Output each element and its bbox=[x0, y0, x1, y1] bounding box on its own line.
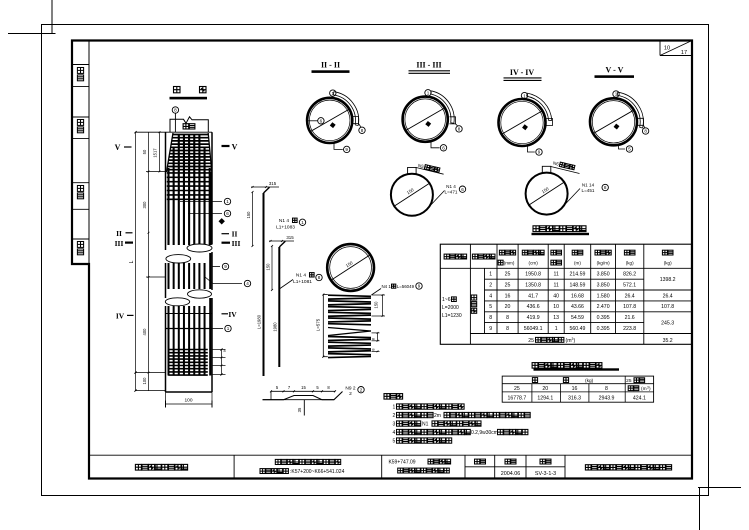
svg-text:25: 25 bbox=[514, 386, 520, 392]
svg-text:IV: IV bbox=[116, 311, 125, 320]
svg-text:(mm): (mm) bbox=[504, 261, 515, 266]
svg-text:1: 1 bbox=[523, 93, 526, 98]
svg-text:N1 14: N1 14 bbox=[582, 183, 595, 188]
svg-text:V - V: V - V bbox=[606, 65, 624, 74]
svg-text:1398.2: 1398.2 bbox=[660, 277, 676, 283]
svg-text:(cm): (cm) bbox=[529, 261, 539, 266]
svg-text:(kg): (kg) bbox=[664, 261, 672, 266]
svg-text:1: 1 bbox=[427, 91, 430, 96]
svg-text:1~6: 1~6 bbox=[442, 297, 451, 303]
svg-text:150: 150 bbox=[266, 263, 271, 271]
svg-text:N1 4: N1 4 bbox=[279, 218, 289, 224]
svg-text:10: 10 bbox=[553, 304, 559, 310]
svg-text:50: 50 bbox=[142, 149, 147, 154]
svg-text:150: 150 bbox=[374, 301, 379, 309]
svg-text:315: 315 bbox=[269, 181, 277, 186]
svg-text::K57+200~K66+541.024: :K57+200~K66+541.024 bbox=[290, 469, 345, 475]
svg-text:13: 13 bbox=[553, 315, 559, 321]
svg-text:8: 8 bbox=[489, 315, 492, 321]
svg-text:107.8: 107.8 bbox=[623, 304, 636, 310]
svg-text:1: 1 bbox=[301, 220, 304, 225]
svg-text:316.3: 316.3 bbox=[568, 396, 581, 402]
svg-text:16: 16 bbox=[572, 386, 578, 392]
svg-text:6: 6 bbox=[461, 187, 464, 192]
svg-text:41.7: 41.7 bbox=[528, 293, 538, 299]
svg-text:8: 8 bbox=[174, 108, 177, 113]
svg-text:9: 9 bbox=[538, 150, 541, 155]
svg-text:5: 5 bbox=[489, 304, 492, 310]
svg-text:(kg): (kg) bbox=[626, 261, 634, 266]
svg-text:214.59: 214.59 bbox=[570, 272, 586, 278]
svg-text:107.8: 107.8 bbox=[661, 304, 674, 310]
svg-text:2: 2 bbox=[489, 282, 492, 288]
svg-text:L=471: L=471 bbox=[445, 190, 458, 195]
svg-text:III - III: III - III bbox=[416, 60, 441, 69]
svg-text:N4 1: N4 1 bbox=[382, 284, 392, 289]
svg-text:L=1980: L=1980 bbox=[257, 314, 262, 329]
svg-text:1.580: 1.580 bbox=[597, 293, 610, 299]
svg-text:0.395: 0.395 bbox=[597, 326, 610, 332]
svg-text:25: 25 bbox=[626, 378, 632, 384]
svg-text:100: 100 bbox=[184, 398, 192, 404]
svg-text:V: V bbox=[115, 143, 121, 152]
svg-text:2943.9: 2943.9 bbox=[599, 396, 615, 402]
svg-text:0.395: 0.395 bbox=[597, 315, 610, 321]
svg-text:35.2: 35.2 bbox=[663, 338, 673, 344]
svg-text:25: 25 bbox=[505, 282, 511, 288]
svg-text:L=575: L=575 bbox=[316, 318, 321, 331]
svg-text:9: 9 bbox=[224, 264, 227, 269]
svg-text:15: 15 bbox=[301, 385, 306, 390]
svg-text:II: II bbox=[116, 229, 122, 238]
svg-text:(kg): (kg) bbox=[585, 378, 594, 384]
svg-text:8: 8 bbox=[223, 349, 225, 353]
svg-text:35: 35 bbox=[297, 407, 302, 412]
svg-text:54.59: 54.59 bbox=[571, 315, 584, 321]
svg-text:20: 20 bbox=[542, 386, 548, 392]
svg-text:V: V bbox=[232, 143, 238, 152]
svg-text:2: 2 bbox=[393, 413, 396, 419]
svg-text:2: 2 bbox=[349, 391, 352, 397]
svg-text:419.9: 419.9 bbox=[527, 315, 540, 321]
svg-text:2: 2 bbox=[360, 387, 363, 392]
svg-text:8: 8 bbox=[361, 128, 364, 133]
svg-text:1: 1 bbox=[332, 91, 335, 96]
svg-text:N1: N1 bbox=[422, 422, 429, 428]
svg-text:20: 20 bbox=[505, 304, 511, 310]
svg-text:40: 40 bbox=[553, 293, 559, 299]
svg-text:26.4: 26.4 bbox=[663, 293, 673, 299]
svg-text:25: 25 bbox=[505, 272, 511, 278]
svg-text:L=451: L=451 bbox=[582, 188, 595, 193]
svg-text:3.850: 3.850 bbox=[597, 272, 610, 278]
svg-text:1294.1: 1294.1 bbox=[537, 396, 553, 402]
svg-text:1: 1 bbox=[227, 326, 230, 331]
svg-text:1: 1 bbox=[393, 405, 396, 411]
svg-text:8: 8 bbox=[604, 185, 607, 190]
svg-text:IV: IV bbox=[228, 310, 237, 319]
svg-text:8: 8 bbox=[372, 338, 376, 340]
svg-text:5: 5 bbox=[628, 147, 631, 152]
svg-text:L1+1081: L1+1081 bbox=[293, 279, 312, 285]
svg-text:2004.06: 2004.06 bbox=[501, 471, 521, 477]
svg-text:9: 9 bbox=[489, 326, 492, 332]
svg-text:SV-3-1-3: SV-3-1-3 bbox=[535, 471, 556, 477]
svg-text:16.68: 16.68 bbox=[571, 293, 584, 299]
svg-text:315: 315 bbox=[286, 235, 294, 240]
svg-text:1: 1 bbox=[226, 199, 229, 204]
svg-text:6: 6 bbox=[442, 146, 445, 151]
svg-text:16: 16 bbox=[505, 293, 511, 299]
svg-text:1350.8: 1350.8 bbox=[525, 282, 541, 288]
svg-text:245.3: 245.3 bbox=[661, 320, 674, 326]
svg-text:L: L bbox=[129, 260, 135, 263]
svg-text:9: 9 bbox=[418, 284, 421, 289]
svg-text:6: 6 bbox=[226, 211, 229, 216]
svg-text:100: 100 bbox=[142, 377, 147, 385]
svg-text:25: 25 bbox=[528, 338, 534, 344]
svg-text:56049.1: 56049.1 bbox=[524, 326, 543, 332]
svg-text:1950.8: 1950.8 bbox=[525, 272, 541, 278]
svg-text:10: 10 bbox=[664, 46, 670, 52]
svg-text:L1=1230: L1=1230 bbox=[442, 313, 462, 319]
svg-text:(m): (m) bbox=[574, 261, 581, 266]
svg-text:IV - IV: IV - IV bbox=[510, 68, 535, 77]
svg-text:1: 1 bbox=[615, 92, 618, 97]
svg-text:16778.7: 16778.7 bbox=[508, 396, 527, 402]
svg-text:III: III bbox=[232, 239, 241, 248]
svg-text:572.1: 572.1 bbox=[623, 282, 636, 288]
svg-text:N1 4: N1 4 bbox=[446, 184, 456, 189]
svg-text:1517: 1517 bbox=[152, 148, 157, 158]
svg-text:(kg/m): (kg/m) bbox=[597, 261, 610, 266]
svg-text:6: 6 bbox=[320, 119, 323, 124]
svg-text:8: 8 bbox=[644, 129, 647, 134]
svg-text:L1+1083: L1+1083 bbox=[276, 225, 295, 231]
svg-text:11: 11 bbox=[554, 272, 559, 278]
svg-text:8: 8 bbox=[318, 275, 321, 280]
svg-text:1: 1 bbox=[555, 326, 558, 332]
svg-text:400: 400 bbox=[142, 328, 147, 336]
svg-text:150: 150 bbox=[246, 211, 251, 219]
svg-text:11: 11 bbox=[554, 282, 559, 288]
svg-text:8: 8 bbox=[458, 127, 461, 132]
svg-text:436.6: 436.6 bbox=[527, 304, 540, 310]
svg-text:148.59: 148.59 bbox=[570, 282, 586, 288]
svg-text:2.470: 2.470 bbox=[597, 304, 610, 310]
svg-text:4: 4 bbox=[489, 293, 492, 299]
svg-text:4: 4 bbox=[393, 430, 396, 436]
svg-text:9: 9 bbox=[345, 147, 348, 152]
svg-text:(m: (m bbox=[641, 386, 647, 392]
svg-text:0.2,9w30cm: 0.2,9w30cm bbox=[471, 430, 498, 436]
svg-text:8: 8 bbox=[605, 386, 608, 392]
svg-text:560.49: 560.49 bbox=[570, 326, 586, 332]
svg-text:3.850: 3.850 bbox=[597, 282, 610, 288]
svg-text:826.2: 826.2 bbox=[623, 272, 636, 278]
svg-text:4: 4 bbox=[246, 281, 249, 286]
svg-text:424.1: 424.1 bbox=[633, 396, 646, 402]
svg-text:17: 17 bbox=[681, 50, 687, 56]
svg-text:8: 8 bbox=[506, 315, 509, 321]
svg-text:1980: 1980 bbox=[272, 322, 277, 332]
svg-text:21.6: 21.6 bbox=[625, 315, 635, 321]
svg-text:3: 3 bbox=[393, 422, 396, 428]
svg-text:2m: 2m bbox=[434, 413, 441, 419]
svg-text:II: II bbox=[232, 230, 238, 239]
svg-text:5: 5 bbox=[393, 439, 396, 445]
svg-text:L=2000: L=2000 bbox=[442, 305, 459, 311]
svg-text:K59+747.09: K59+747.09 bbox=[388, 460, 415, 466]
svg-text:N1 4: N1 4 bbox=[296, 273, 306, 279]
svg-text:): ) bbox=[574, 338, 576, 344]
svg-text:1: 1 bbox=[489, 272, 492, 278]
svg-text:8: 8 bbox=[372, 348, 376, 350]
svg-text:II - II: II - II bbox=[321, 60, 340, 69]
svg-text:300: 300 bbox=[142, 201, 147, 209]
svg-text:L=56049: L=56049 bbox=[397, 284, 415, 289]
svg-text:26.4: 26.4 bbox=[625, 293, 635, 299]
svg-text:N9 2: N9 2 bbox=[345, 386, 355, 392]
svg-text:43.66: 43.66 bbox=[571, 304, 584, 310]
svg-text:8: 8 bbox=[506, 326, 509, 332]
svg-text:223.8: 223.8 bbox=[623, 326, 636, 332]
svg-text:III: III bbox=[115, 239, 124, 248]
